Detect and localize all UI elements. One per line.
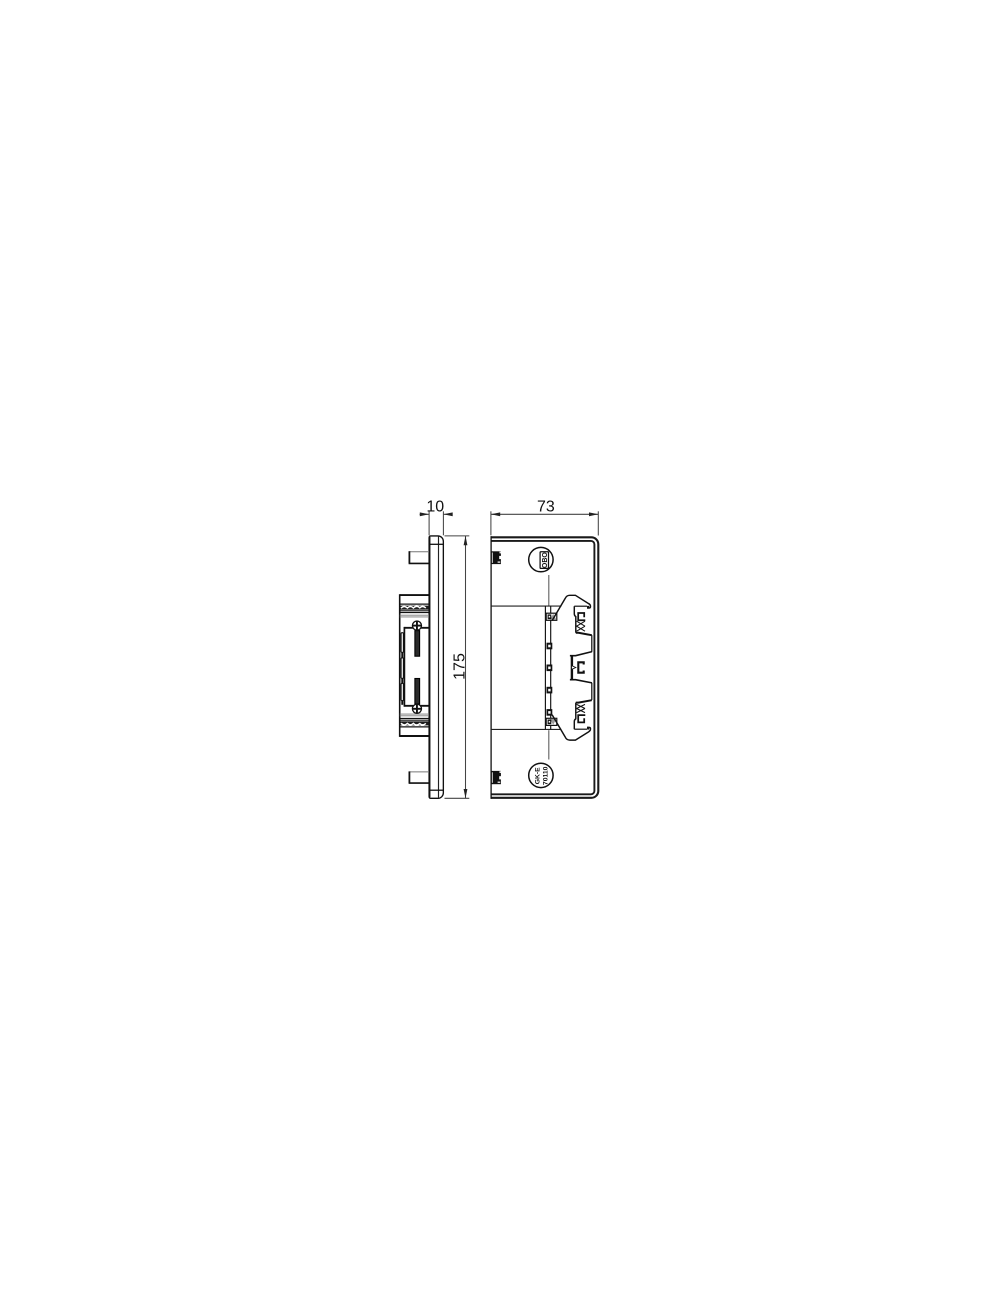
svg-text:73: 73 <box>537 499 555 516</box>
svg-text:GK-E: GK-E <box>535 767 542 784</box>
svg-text:70110: 70110 <box>543 766 550 785</box>
svg-text:175: 175 <box>451 653 468 680</box>
svg-text:OBO: OBO <box>542 552 549 569</box>
